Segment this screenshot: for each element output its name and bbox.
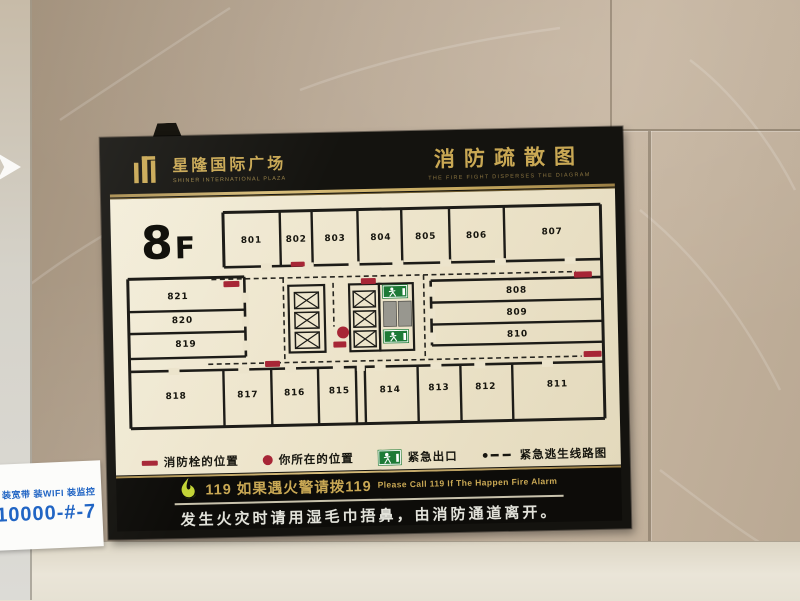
brand-name: 星隆国际广场 [172,150,287,176]
fire-hydrant-marker [574,272,592,278]
legend-label: 你所在的位置 [279,451,354,469]
exit-sign-icon [383,329,409,344]
door-gap [392,261,403,268]
sign-footer: 119 如果遇火警请拨119 Please Call 119 If The Ha… [116,467,622,531]
wall [432,321,603,325]
wall [130,362,604,372]
call-119-text-en: Please Call 119 If The Happen Fire Alarm [378,476,558,490]
legend-item-hydrant: 消防栓的位置 [142,453,239,471]
door-gap [429,333,436,343]
fire-hydrant-marker [223,281,239,287]
wall [128,280,131,429]
room-label: 813 [428,383,449,393]
door-gap [430,362,441,369]
fire-hydrant-marker [265,361,280,367]
door-gap [428,287,435,297]
tile-joint [648,131,651,545]
door-gap [238,367,249,374]
shaft-cross [353,291,375,307]
door-gap [542,360,553,367]
legend-label: 消防栓的位置 [164,453,239,471]
shaft-cross [294,292,318,308]
call-119-text: 119 如果遇火警请拨119 [205,474,372,499]
shaft-cross [354,331,376,347]
door-gap [474,362,485,369]
room-label: 810 [507,330,528,340]
fire-evacuation-sign: 星隆国际广场 SHINER INTERNATIONAL PLAZA 消防疏散图 … [100,126,632,539]
sign-title-block: 消防疏散图 THE FIRE FIGHT DISPERSES THE DIAGR… [427,140,590,182]
legend-item-exit: 紧急出口 [378,448,458,466]
wall [600,205,605,419]
shaft-cross [354,311,376,327]
wall [318,368,319,425]
sign-title: 消防疏散图 [434,141,585,174]
wall [418,366,419,423]
room-label: 820 [172,316,193,326]
lower-wall [0,541,800,601]
hydrant-bar-icon [142,460,158,465]
wall [504,207,505,262]
wall [357,210,358,265]
fire-hydrant-marker [291,262,305,267]
room-label: 819 [175,340,196,350]
exit-sign-glyph [378,450,402,467]
door-gap [357,364,365,371]
route-dash-icon [482,451,514,460]
room-label: 807 [541,227,562,237]
exit-sign-icon [382,284,408,299]
room-label: 812 [475,382,496,392]
wall [312,211,313,266]
room-label: 808 [506,286,527,296]
exit-sign-icon [378,450,402,467]
door-gap [333,365,344,372]
room-label: 804 [370,233,391,243]
plan-panel: 8018028038048058068078088098108118128138… [110,189,621,476]
room-label: 817 [237,390,258,400]
room-label: 818 [165,392,186,402]
sign-title-en: THE FIRE FIGHT DISPERSES THE DIAGRAM [428,172,591,182]
floor-plan-svg: 8018028038048058068078088098108118128138… [110,189,620,452]
floor-label: 8F [140,215,195,270]
tile-joint [610,0,612,130]
fire-hydrant-marker [361,278,376,284]
door-gap [440,260,451,267]
escape-route-line [424,275,426,360]
fire-hydrant-marker [333,342,346,348]
sticker-services-text: 装宽带 装WIFI 装监控 [2,484,96,501]
wall [131,419,605,429]
wall [128,277,245,280]
fire-hydrant-marker [584,351,602,357]
room-label: 815 [329,386,350,396]
brand-block: 星隆国际广场 SHINER INTERNATIONAL PLAZA [131,149,287,186]
door-gap [375,364,386,371]
wall [271,369,272,426]
room-label: 803 [324,234,345,244]
location-dot-icon [263,455,273,465]
wall [128,310,245,313]
wall [460,365,461,422]
legend-label: 紧急逃生线路图 [520,445,608,463]
escape-route-line [283,278,285,363]
door-gap [243,341,250,351]
legend-label: 紧急出口 [408,448,458,465]
door-gap [428,309,435,319]
wall [431,299,602,303]
room-label: 811 [547,380,568,390]
wall [401,209,402,264]
door-gap [242,293,249,303]
room-label: 805 [415,232,436,242]
door-gap [349,262,360,269]
elevator-car [398,301,411,326]
elevator-car [383,302,396,327]
room-label: 806 [466,231,487,241]
wall [223,205,600,213]
room-label: 802 [286,235,307,245]
wall [512,364,513,421]
wall [129,332,246,335]
you-are-here-dot [337,327,349,339]
room-label: 801 [241,236,262,246]
door-gap [285,366,296,373]
escape-route-line [333,283,334,327]
room-label: 821 [167,292,188,302]
shaft-cross [295,332,319,348]
door-gap [242,317,249,327]
floor-plan: 8018028038048058068078088098108118128138… [110,189,620,452]
plaza-logo-icon [131,152,164,187]
flame-icon [176,477,200,501]
door-gap [495,258,506,265]
sticker-phone-text: 10000-#-7 [0,500,97,527]
wall [223,213,224,268]
room-label: 809 [506,308,527,318]
door-gap [261,264,272,271]
room-label: 816 [284,388,305,398]
wall [432,342,603,346]
wall [280,212,281,267]
wifi-ad-sticker: 装宽带 装WIFI 装监控 10000-#-7 [0,460,104,552]
door-gap [565,257,576,264]
legend-item-route: 紧急逃生线路图 [482,445,608,464]
brand-name-en: SHINER INTERNATIONAL PLAZA [173,176,286,184]
wall [356,367,357,424]
wall [223,370,224,427]
tile-joint [610,129,800,131]
legend-item-dot: 你所在的位置 [263,451,354,469]
shaft-cross [295,312,319,328]
escape-instruction-text: 发生火灾时请用湿毛巾捂鼻，由消防通道离开。 [180,501,558,530]
room-label: 814 [380,385,401,395]
wall [129,357,246,360]
door-gap [169,368,180,375]
wall [365,367,366,424]
wall [449,208,450,263]
